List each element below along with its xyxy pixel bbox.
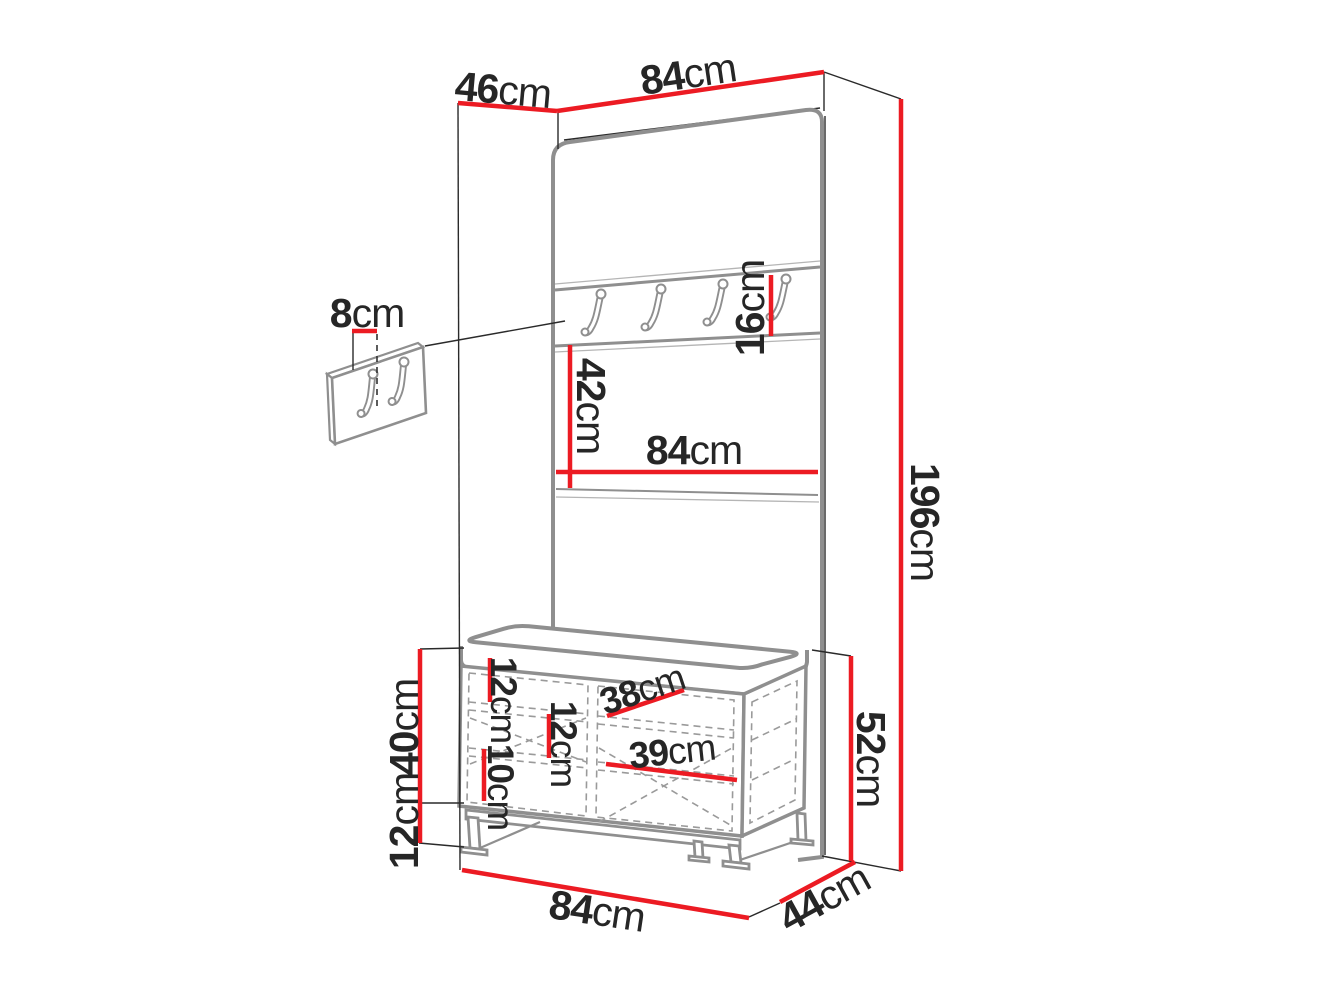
diagram-canvas: 46cm 84cm 196cm 8cm 16cm 42cm 84cm 12cm … bbox=[0, 0, 1320, 990]
dim-label-leg-height: 12cm bbox=[381, 773, 427, 869]
dim-label-gap-top: 12cm bbox=[484, 657, 525, 743]
dim-label-bench-width: 84cm bbox=[546, 881, 648, 941]
dim-label-middle-height: 42cm bbox=[568, 358, 614, 454]
dim-label-top-width: 84cm bbox=[637, 44, 739, 104]
bench-leg-foot bbox=[689, 856, 709, 862]
coat-hook-icon bbox=[704, 280, 728, 326]
bench-leg-foot bbox=[461, 847, 487, 855]
dim-label-bench-depth: 44cm bbox=[771, 855, 877, 942]
coat-hook-icon bbox=[642, 285, 666, 331]
bench-leg bbox=[729, 845, 741, 863]
dim-label-gap-middle: 12cm bbox=[544, 701, 585, 787]
extension-line bbox=[824, 72, 901, 99]
panel-shelf-edge-b bbox=[556, 497, 819, 502]
dim-label-total-height: 196cm bbox=[902, 463, 948, 581]
dim-label-hooks-offset: 8cm bbox=[330, 290, 404, 336]
bench-leg-foot bbox=[791, 839, 813, 845]
detail-pointer-line bbox=[425, 321, 565, 346]
dimension-diagram: 46cm 84cm 196cm 8cm 16cm 42cm 84cm 12cm … bbox=[0, 0, 1320, 990]
hook-rail-bottom-edge bbox=[555, 333, 820, 346]
extension-tick bbox=[420, 648, 464, 649]
dim-label-gap-bottom: 10cm bbox=[481, 744, 522, 830]
coat-hook-icon bbox=[582, 290, 606, 336]
hook-rail-top-edge bbox=[555, 267, 820, 290]
extension-line bbox=[812, 650, 851, 656]
dim-label-top-depth: 46cm bbox=[453, 63, 553, 117]
dim-label-body-height: 40cm bbox=[381, 679, 427, 775]
dim-label-middle-width: 84cm bbox=[646, 427, 742, 473]
hook-panel-front bbox=[332, 347, 426, 444]
hook-rail-top-highlight bbox=[555, 261, 820, 284]
bench-leg-foot bbox=[723, 861, 749, 869]
dim-label-rail-height: 16cm bbox=[727, 260, 773, 356]
bench-leg bbox=[797, 813, 806, 841]
dim-label-bench-height: 52cm bbox=[848, 711, 894, 807]
panel-shelf-edge-a bbox=[556, 489, 818, 495]
bench-leg bbox=[468, 817, 480, 849]
